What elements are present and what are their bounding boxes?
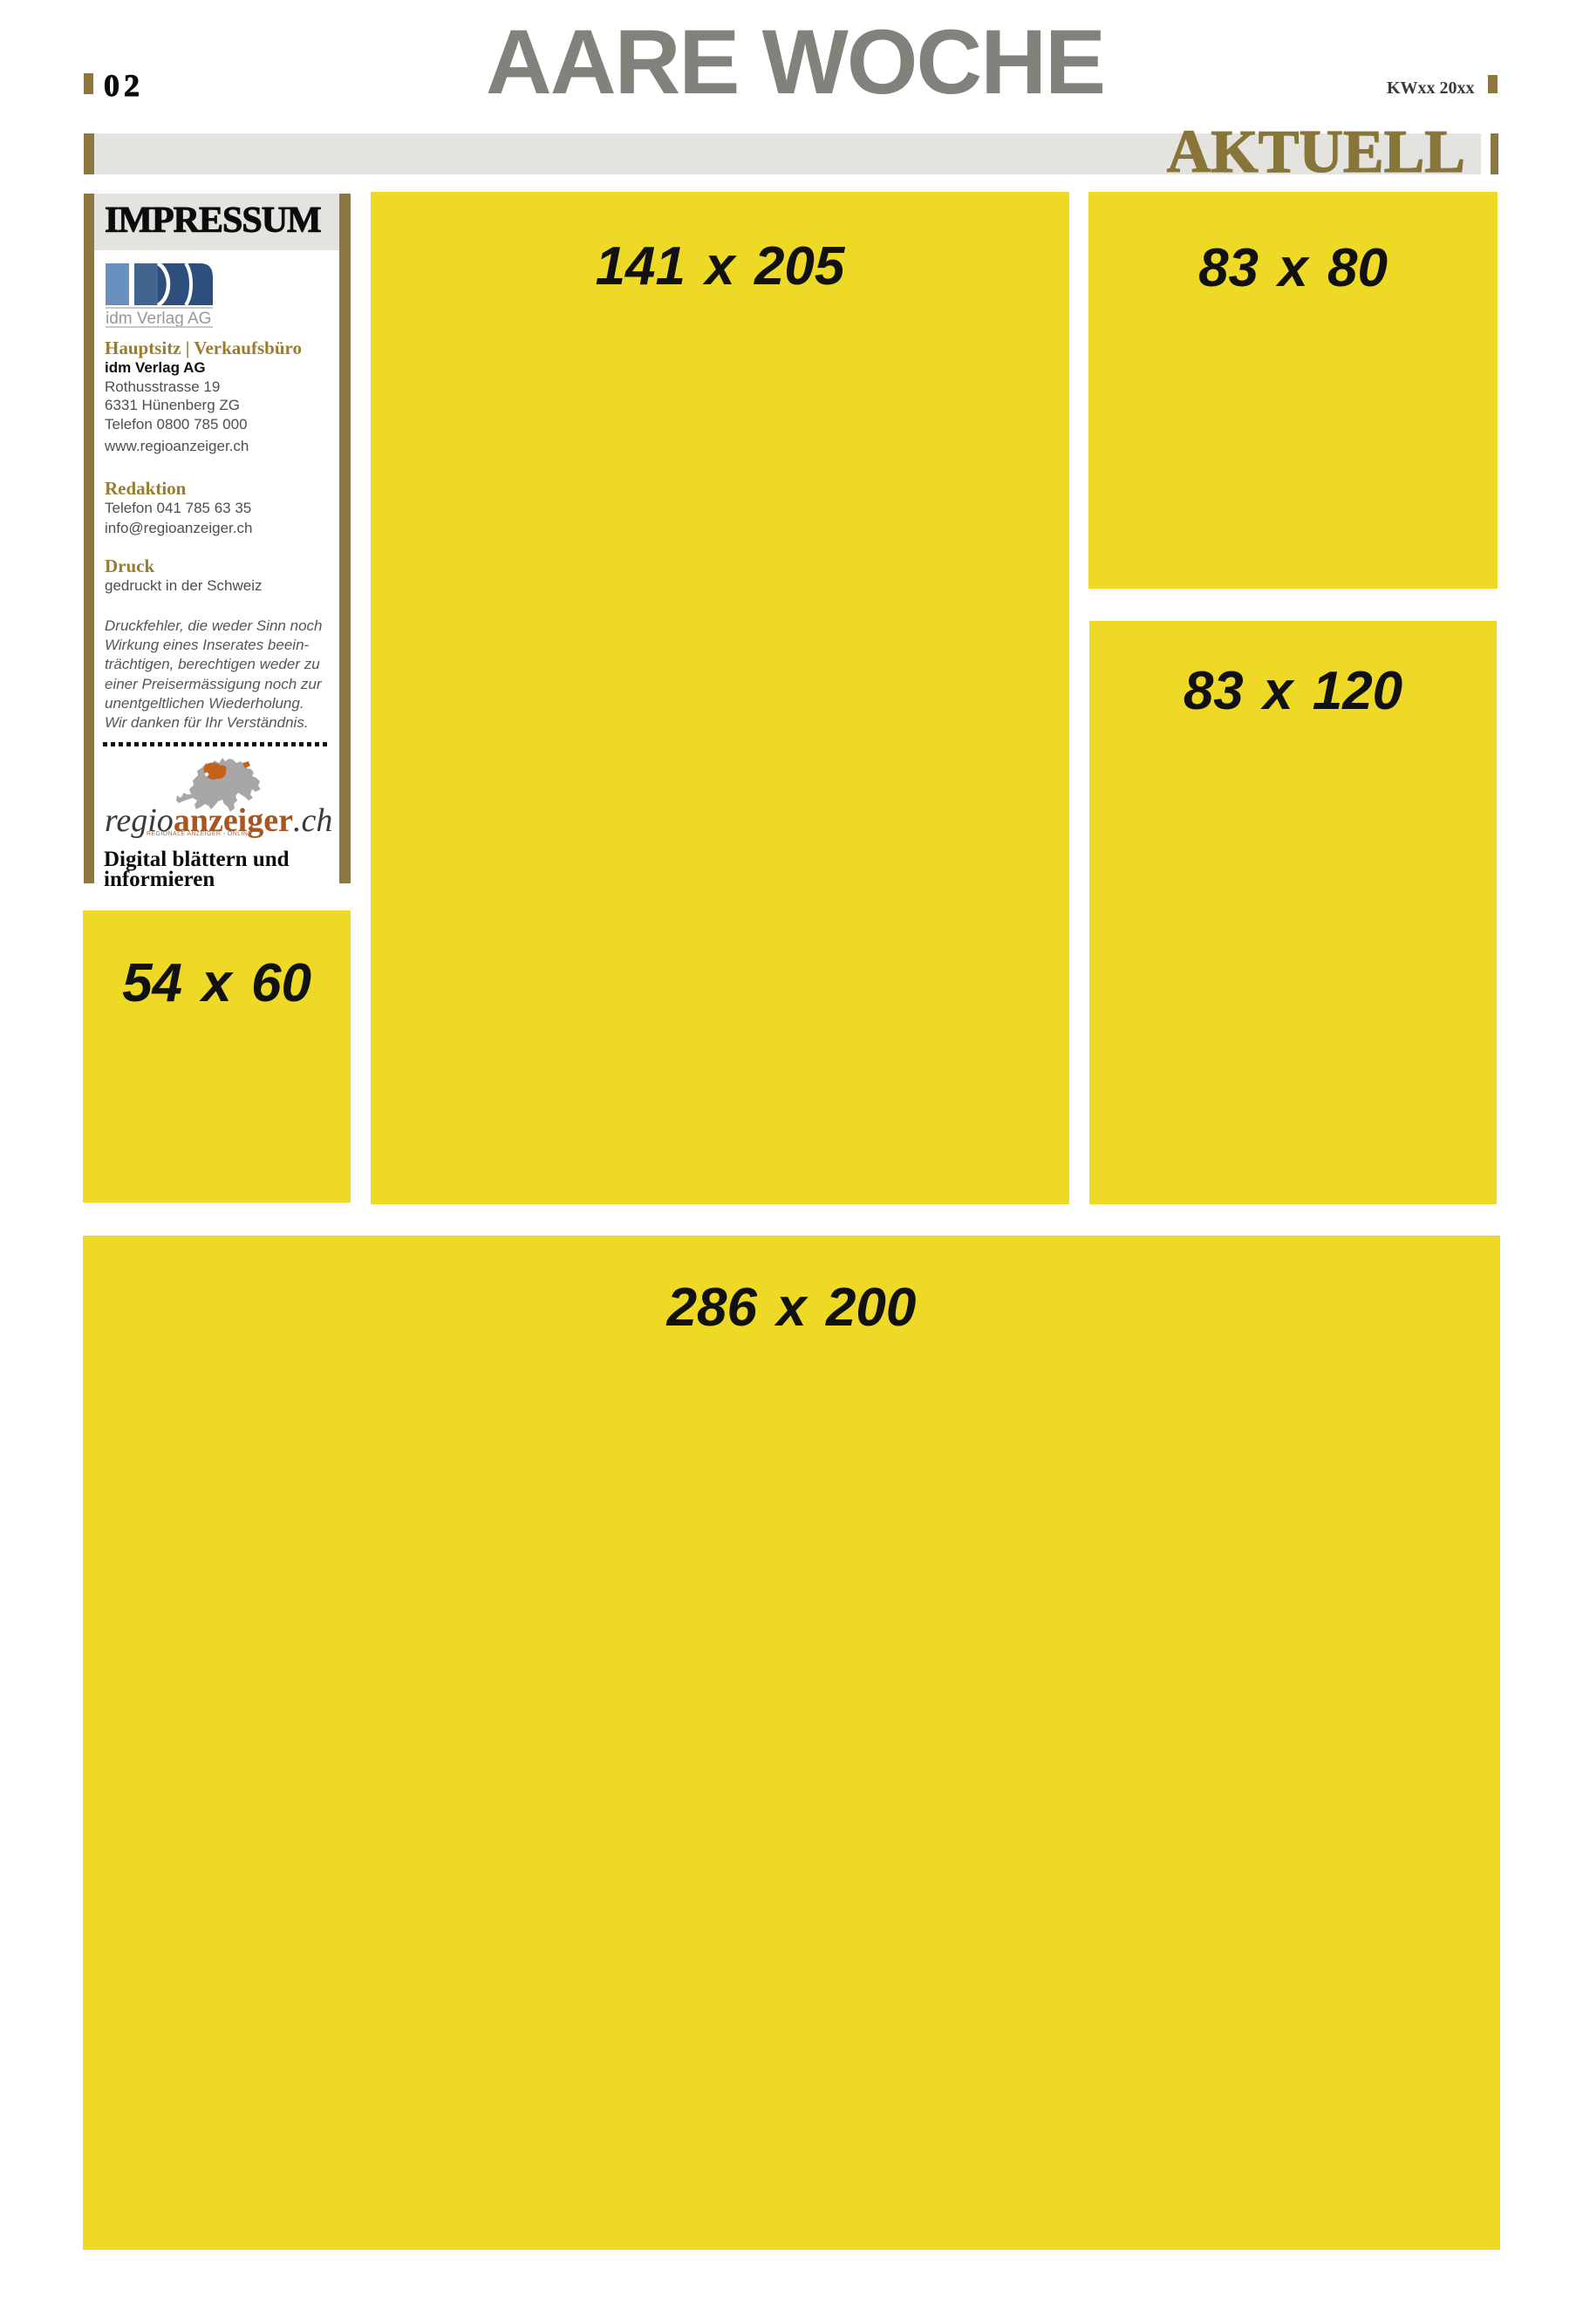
svg-text:idm Verlag AG: idm Verlag AG: [106, 310, 211, 328]
